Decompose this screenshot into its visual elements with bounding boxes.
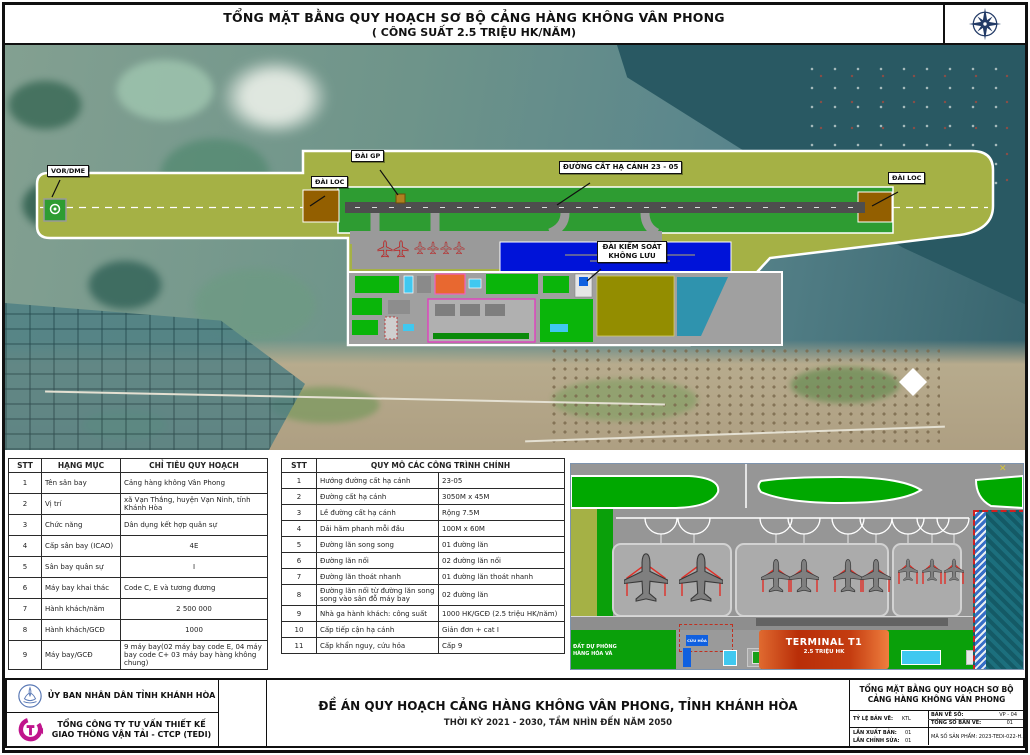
product-code-cell: MÃ SỐ SẢN PHẨM: 2023-TEDI-022-H.K <box>928 728 1023 745</box>
table-cell: Code C, E và tương đương <box>121 578 268 599</box>
table-cell: Cấp sân bay (ICAO) <box>42 536 121 557</box>
title-line1: TỔNG MẶT BẰNG QUY HOẠCH SƠ BỘ CẢNG HÀNG … <box>223 10 724 25</box>
label-dai-loc-east: ĐÀI LOC <box>888 172 925 184</box>
table-row: 7Hành khách/năm2 500 000 <box>9 599 268 620</box>
vor-dme-station <box>44 199 66 221</box>
sheet-info-cell: TỔNG MẶT BẰNG QUY HOẠCH SƠ BỘ CẢNG HÀNG … <box>850 680 1023 746</box>
table-row: 3Lề đường cất hạ cánhRộng 7.5M <box>282 505 565 521</box>
fire-station-label: CỨU HỎA <box>686 635 708 646</box>
sheet-title: TỔNG MẶT BẰNG QUY HOẠCH SƠ BỘ CẢNG HÀNG … <box>850 680 1023 711</box>
table-cell: 11 <box>282 638 317 654</box>
table-row: 9Máy bay/GCĐ9 máy bay(02 máy bay code E,… <box>9 641 268 670</box>
compass-rose-icon <box>967 6 1003 42</box>
table-cell: Lề đường cất hạ cánh <box>317 505 439 521</box>
table-cell: 5 <box>9 557 42 578</box>
table-cell: Đường cất hạ cánh <box>317 489 439 505</box>
reserve-land-note: ĐẤT DỰ PHÒNG HÀNG HÓA VÀ <box>573 644 617 657</box>
table-cell: 3 <box>9 515 42 536</box>
table-cell: Rộng 7.5M <box>439 505 565 521</box>
table-header-row: STT HẠNG MỤC CHỈ TIÊU QUY HOẠCH <box>9 459 268 473</box>
table-row: 3Chức năngDân dụng kết hợp quân sự <box>9 515 268 536</box>
stand-lead-in-arcs <box>645 518 969 534</box>
table-cell: 1000 HK/GCĐ (2.5 triệu HK/năm) <box>439 606 565 622</box>
reserved-teal-zone <box>973 510 1024 670</box>
curbside-bar <box>756 618 948 626</box>
table-cell: 9 máy bay(02 máy bay code E, 04 máy bay … <box>121 641 268 670</box>
table-cell: Cấp 9 <box>439 638 565 654</box>
title-block: ỦY BAN NHÂN DÂN TỈNH KHÁNH HÒA TỔNG CÔNG… <box>5 678 1025 748</box>
table-cell: 1 <box>9 473 42 494</box>
stand-pad-code-c <box>736 544 888 616</box>
table-cell: Nhà ga hành khách: công suất <box>317 606 439 622</box>
project-period: THỜI KỲ 2021 - 2030, TẦM NHÌN ĐẾN NĂM 20… <box>444 718 672 728</box>
table-cell: Chức năng <box>42 515 121 536</box>
table-cell: I <box>121 557 268 578</box>
table-cell: 9 <box>282 606 317 622</box>
org-consultant-name: TỔNG CÔNG TY TƯ VẤN THIẾT KẾ GIAO THÔNG … <box>47 720 218 740</box>
table-cell: 9 <box>9 641 42 670</box>
table-cell: Dải hãm phanh mỗi đầu <box>317 521 439 537</box>
table-cell: Máy bay khai thác <box>42 578 121 599</box>
org-consultant: TỔNG CÔNG TY TƯ VẤN THIẾT KẾ GIAO THÔNG … <box>7 714 218 746</box>
airport-plan-overlay <box>5 45 1025 450</box>
title-line2: ( CÔNG SUẤT 2.5 TRIỆU HK/NĂM) <box>372 26 576 39</box>
table-cell: Cấp tiếp cận hạ cánh <box>317 622 439 638</box>
table-cell: Hành khách/GCĐ <box>42 620 121 641</box>
diamond-marker <box>899 368 927 396</box>
table-cell: 3 <box>282 505 317 521</box>
title-bar: TỔNG MẶT BẰNG QUY HOẠCH SƠ BỘ CẢNG HÀNG … <box>5 5 1025 46</box>
edition-cell: LẦN XUẤT BẢN: 01 LẦN CHỈNH SỬA: 01 <box>850 728 929 745</box>
table-cell: Đường lăn thoát nhanh <box>317 569 439 585</box>
table-row: 7Đường lăn thoát nhanh01 đường lăn thoát… <box>282 569 565 585</box>
water-pool <box>723 650 737 666</box>
table-cell: Vị trí <box>42 494 121 515</box>
table-row: 4Dải hãm phanh mỗi đầu100M x 60M <box>282 521 565 537</box>
table-cell: 01 đường lăn thoát nhanh <box>439 569 565 585</box>
table-row: 6Máy bay khai thácCode C, E và tương đươ… <box>9 578 268 599</box>
table-cell: 02 đường lăn nối <box>439 553 565 569</box>
table-cell: 6 <box>282 553 317 569</box>
terminal-detail-view: ĐẤT DỰ PHÒNG HÀNG HÓA VÀ CỨU HỎA VIP TER… <box>570 463 1024 670</box>
col-header: QUY MÔ CÁC CÔNG TRÌNH CHÍNH <box>317 459 565 473</box>
table-cell: 2 500 000 <box>121 599 268 620</box>
green-island-center <box>759 477 922 503</box>
product-code: MÃ SỐ SẢN PHẨM: 2023-TEDI-022-H.K <box>931 734 1026 740</box>
table-cell: Cấp khẩn nguy, cứu hỏa <box>317 638 439 654</box>
table-row: 6Đường lăn nối02 đường lăn nối <box>282 553 565 569</box>
project-title-cell: ĐỀ ÁN QUY HOẠCH CẢNG HÀNG KHÔNG VÂN PHON… <box>267 680 850 746</box>
table-cell: Giản đơn + cat I <box>439 622 565 638</box>
col-header: HẠNG MỤC <box>42 459 121 473</box>
table-cell: Hành khách/năm <box>42 599 121 620</box>
drawing-number-cell: BẢN VẼ SỐ: VP - 04 TỔNG SỐ BẢN VẼ: 01 <box>928 710 1023 727</box>
table-row: 9Nhà ga hành khách: công suất1000 HK/GCĐ… <box>282 606 565 622</box>
drawing-number-value: VP - 04 <box>999 712 1017 718</box>
table-cell: 8 <box>282 585 317 606</box>
table-row: 2Vị tríxã Vạn Thắng, huyện Vạn Ninh, tỉn… <box>9 494 268 515</box>
table-cell: 6 <box>9 578 42 599</box>
drawing-sheet: TỔNG MẶT BẰNG QUY HOẠCH SƠ BỘ CẢNG HÀNG … <box>0 0 1030 755</box>
corner-x-marker: ✕ <box>999 464 1007 474</box>
table-row: 5Đường lăn song song01 đường lăn <box>282 537 565 553</box>
khanh-hoa-emblem-icon <box>13 683 47 709</box>
table-cell: 2 <box>282 489 317 505</box>
org-province: ỦY BAN NHÂN DÂN TỈNH KHÁNH HÒA <box>7 680 218 713</box>
sheet-info-row1: TỶ LỆ BẢN VẼ: KTL BẢN VẼ SỐ: VP - 04 TỔN… <box>850 710 1023 728</box>
table-cell: xã Vạn Thắng, huyện Vạn Ninh, tỉnh Khánh… <box>121 494 268 515</box>
table-cell: 4E <box>121 536 268 557</box>
organizations-cell: ỦY BAN NHÂN DÂN TỈNH KHÁNH HÒA TỔNG CÔNG… <box>7 680 219 746</box>
table-cell: 2 <box>9 494 42 515</box>
table-cell: 02 đường lăn <box>439 585 565 606</box>
reserve-olive-block <box>597 276 674 336</box>
table-cell: 23-05 <box>439 473 565 489</box>
table-cell: Sân bay quân sự <box>42 557 121 578</box>
terminal-capacity-label: 2.5 TRIỆU HK <box>759 649 889 655</box>
col-header: CHỈ TIÊU QUY HOẠCH <box>121 459 268 473</box>
label-dai-gp: ĐÀI GP <box>351 150 384 162</box>
table-cell: 01 đường lăn <box>439 537 565 553</box>
table-cell: 4 <box>282 521 317 537</box>
green-island-left <box>571 476 718 508</box>
scale-cell: TỶ LỆ BẢN VẼ: KTL <box>850 710 929 727</box>
green-island-right <box>976 476 1023 508</box>
planning-criteria-table: STT HẠNG MỤC CHỈ TIÊU QUY HOẠCH 1Tên sân… <box>8 458 268 670</box>
main-works-table: STT QUY MÔ CÁC CÔNG TRÌNH CHÍNH 1Hướng đ… <box>281 458 565 654</box>
table-row: 10Cấp tiếp cận hạ cánhGiản đơn + cat I <box>282 622 565 638</box>
table-row: 5Sân bay quân sựI <box>9 557 268 578</box>
label-dai-loc-west: ĐÀI LOC <box>311 176 348 188</box>
edition-value: 01 <box>905 730 911 736</box>
terminal-t1-building: TERMINAL T1 2.5 TRIỆU HK <box>759 630 889 669</box>
hatch-strip <box>975 512 986 670</box>
table-cell: 1000 <box>121 620 268 641</box>
scale-value: KTL <box>902 716 911 722</box>
revision-value: 01 <box>905 738 911 744</box>
table-row: 1Tên sân bayCảng hàng không Vân Phong <box>9 473 268 494</box>
org-province-name: ỦY BAN NHÂN DÂN TỈNH KHÁNH HÒA <box>47 691 218 701</box>
table-cell: 7 <box>282 569 317 585</box>
water-pool <box>901 650 941 665</box>
table-row: 8Đường lăn nối từ đường lăn song song và… <box>282 585 565 606</box>
master-plan-map: VOR/DME ĐÀI GP ĐÀI LOC ĐƯỜNG CẤT HẠ CÁNH… <box>5 45 1025 450</box>
compass-cell <box>943 5 1025 43</box>
drawing-title: TỔNG MẶT BẰNG QUY HOẠCH SƠ BỘ CẢNG HÀNG … <box>5 5 943 43</box>
table-cell: 10 <box>282 622 317 638</box>
table-cell: Cảng hàng không Vân Phong <box>121 473 268 494</box>
table-header-row: STT QUY MÔ CÁC CÔNG TRÌNH CHÍNH <box>282 459 565 473</box>
landside-green-zone: ĐẤT DỰ PHÒNG HÀNG HÓA VÀ CỨU HỎA VIP TER… <box>571 630 1023 669</box>
label-control-tower: ĐÀI KIỂM SOÁT KHÔNG LƯU <box>597 241 667 263</box>
control-tower <box>579 277 588 286</box>
label-vor-dme: VOR/DME <box>47 165 89 177</box>
empty-cell <box>219 680 267 746</box>
table-cell: Dân dụng kết hợp quân sự <box>121 515 268 536</box>
loc-pad-west <box>303 190 339 222</box>
total-sheets-value: 01 <box>1007 720 1013 726</box>
table-row: 8Hành khách/GCĐ1000 <box>9 620 268 641</box>
sheet-info-row2: LẦN XUẤT BẢN: 01 LẦN CHỈNH SỬA: 01 MÃ SỐ… <box>850 728 1023 745</box>
table-cell: 3050M x 45M <box>439 489 565 505</box>
table-cell: 7 <box>9 599 42 620</box>
table-row: 11Cấp khẩn nguy, cứu hỏaCấp 9 <box>282 638 565 654</box>
col-header: STT <box>9 459 42 473</box>
table-cell: Tên sân bay <box>42 473 121 494</box>
tedi-logo-icon <box>13 716 47 743</box>
table-cell: Máy bay/GCĐ <box>42 641 121 670</box>
table-cell: 4 <box>9 536 42 557</box>
col-header: STT <box>282 459 317 473</box>
table-cell: 1 <box>282 473 317 489</box>
table-cell: 5 <box>282 537 317 553</box>
table-cell: Đường lăn song song <box>317 537 439 553</box>
project-title: ĐỀ ÁN QUY HOẠCH CẢNG HÀNG KHÔNG VÂN PHON… <box>318 699 797 713</box>
table-cell: Hướng đường cất hạ cánh <box>317 473 439 489</box>
table-cell: Đường lăn nối từ đường lăn song song vào… <box>317 585 439 606</box>
landside-complex <box>348 272 782 345</box>
table-row: 2Đường cất hạ cánh3050M x 45M <box>282 489 565 505</box>
table-row: 4Cấp sân bay (ICAO)4E <box>9 536 268 557</box>
table-cell: Đường lăn nối <box>317 553 439 569</box>
label-runway: ĐƯỜNG CẤT HẠ CÁNH 23 - 05 <box>559 161 682 174</box>
table-cell: 8 <box>9 620 42 641</box>
terminal-label: TERMINAL T1 <box>759 637 889 648</box>
fire-station-building <box>683 648 691 667</box>
table-row: 1Hướng đường cất hạ cánh23-05 <box>282 473 565 489</box>
table-cell: 100M x 60M <box>439 521 565 537</box>
gp-station <box>396 194 405 203</box>
